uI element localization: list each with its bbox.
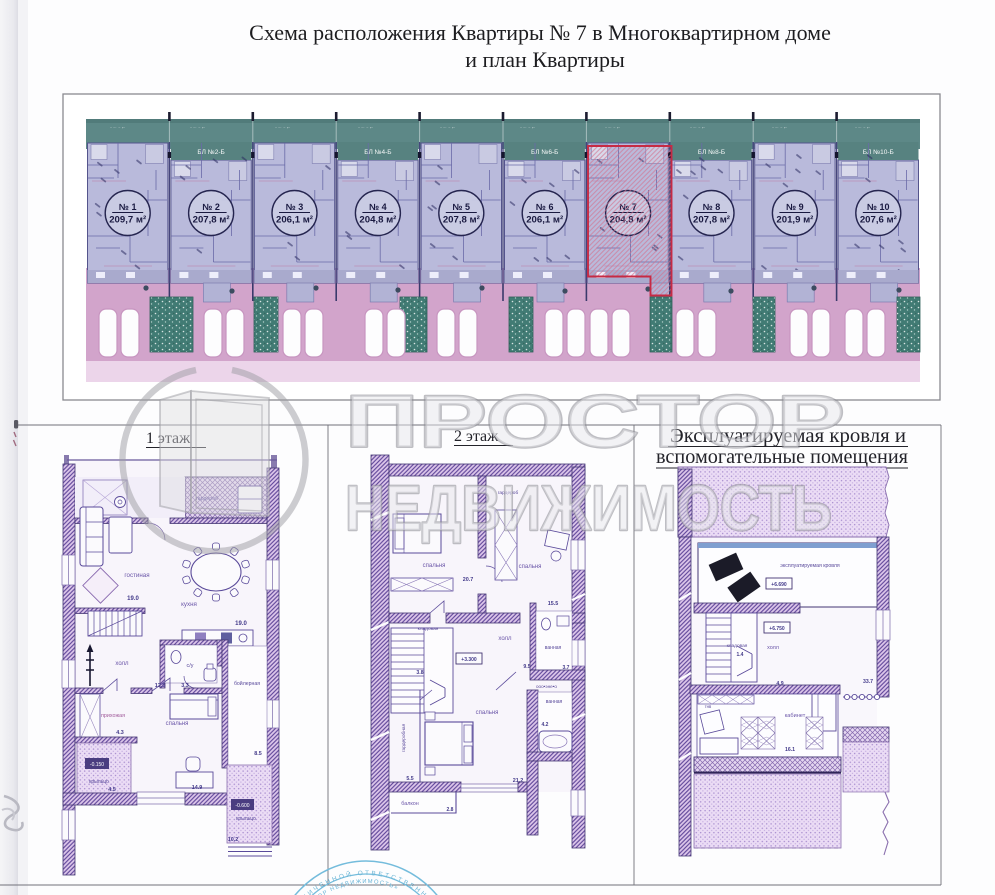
svg-text:спальня: спальня bbox=[519, 564, 542, 570]
svg-text:˝ ˝´ ˝ ʼ˝: ˝ ˝´ ˝ ʼ˝ bbox=[275, 127, 291, 133]
svg-text:5.5: 5.5 bbox=[406, 776, 413, 782]
svg-text:№ 9: № 9 bbox=[786, 202, 804, 212]
svg-text:˝ ˝´ ˝ ʼ˝: ˝ ˝´ ˝ ʼ˝ bbox=[358, 127, 374, 133]
svg-text:˝ ˝´ ˝ ʼ˝: ˝ ˝´ ˝ ʼ˝ bbox=[690, 127, 706, 133]
svg-text:204,8 м²: 204,8 м² bbox=[359, 215, 396, 226]
svg-text:кухня: кухня bbox=[181, 601, 197, 608]
svg-text:гардеробная: гардеробная bbox=[401, 723, 407, 752]
svg-text:-0.600: -0.600 bbox=[235, 803, 249, 809]
svg-text:207,8 м²: 207,8 м² bbox=[193, 215, 230, 226]
svg-text:4.3: 4.3 bbox=[116, 730, 124, 736]
svg-text:кладовая: кладовая bbox=[418, 627, 439, 632]
svg-text:НЕДВИЖИМОСТЬ: НЕДВИЖИМОСТЬ bbox=[345, 472, 832, 544]
svg-text:крыльцо: крыльцо bbox=[236, 816, 256, 822]
svg-text:4.5: 4.5 bbox=[108, 787, 116, 793]
svg-text:прихожая: прихожая bbox=[101, 713, 125, 719]
svg-text:19.0: 19.0 bbox=[235, 621, 247, 627]
svg-text:тнв: тнв bbox=[705, 704, 712, 709]
svg-text:№ 4: № 4 bbox=[369, 202, 387, 212]
svg-text:206,1 м²: 206,1 м² bbox=[526, 215, 563, 226]
svg-text:+6.690: +6.690 bbox=[771, 582, 787, 588]
svg-text:+6.750: +6.750 bbox=[769, 626, 785, 632]
svg-text:с/у: с/у bbox=[187, 663, 194, 669]
svg-text:207,8 м²: 207,8 м² bbox=[443, 215, 480, 226]
svg-text:207,6 м²: 207,6 м² bbox=[860, 215, 897, 226]
svg-text:№ 10: № 10 bbox=[867, 202, 890, 212]
svg-text:№ 8: № 8 bbox=[703, 202, 721, 212]
svg-text:10.2: 10.2 bbox=[228, 837, 239, 843]
svg-text:8.5: 8.5 bbox=[254, 751, 262, 757]
svg-text:ПРОСТОР: ПРОСТОР bbox=[345, 380, 845, 463]
svg-text:спальня: спальня bbox=[476, 710, 499, 716]
svg-text:14.9: 14.9 bbox=[192, 785, 203, 791]
svg-text:˝ ˝´ ˝ ʼ˝: ˝ ˝´ ˝ ʼ˝ bbox=[605, 127, 621, 133]
svg-text:15.5: 15.5 bbox=[548, 601, 559, 607]
svg-text:33.7: 33.7 bbox=[863, 679, 873, 685]
svg-text:балкон: балкон bbox=[401, 801, 419, 807]
svg-text:16.1: 16.1 bbox=[785, 747, 795, 753]
svg-text:холл: холл bbox=[767, 645, 779, 651]
svg-text:бойлерная: бойлерная bbox=[234, 680, 260, 687]
svg-text:˝ ˝´ ˝ ʼ˝: ˝ ˝´ ˝ ʼ˝ bbox=[440, 127, 456, 133]
svg-text:˝ ˝´ ˝ ʼ˝: ˝ ˝´ ˝ ʼ˝ bbox=[110, 127, 126, 133]
svg-text:+3.300: +3.300 bbox=[461, 657, 477, 663]
svg-text:№ 5: № 5 bbox=[453, 202, 471, 212]
svg-text:кладовая: кладовая bbox=[727, 644, 748, 649]
svg-text:19.0: 19.0 bbox=[127, 596, 139, 602]
svg-text:ванная: ванная bbox=[545, 645, 562, 651]
svg-text:ооо•эне•о: ооо•эне•о bbox=[536, 684, 557, 689]
svg-text:ванная: ванная bbox=[546, 699, 563, 705]
svg-text:209,7 м²: 209,7 м² bbox=[109, 215, 146, 226]
svg-text:˝ ˝´ ˝ ʼ˝: ˝ ˝´ ˝ ʼ˝ bbox=[520, 127, 536, 133]
svg-text:спальня: спальня bbox=[423, 563, 446, 569]
svg-text:˝ ˝´ ˝ ʼ˝: ˝ ˝´ ˝ ʼ˝ bbox=[190, 127, 206, 133]
svg-text:№ 1: № 1 bbox=[119, 202, 137, 212]
svg-text:˝ ˝´ ˝ ʼ˝: ˝ ˝´ ˝ ʼ˝ bbox=[855, 127, 871, 133]
svg-text:-0.150: -0.150 bbox=[90, 762, 104, 768]
svg-text:кабинет: кабинет bbox=[785, 713, 806, 719]
svg-text:крыльцо: крыльцо bbox=[89, 779, 109, 785]
svg-text:гостиная: гостиная bbox=[124, 572, 149, 579]
svg-text:№ 3: № 3 bbox=[286, 202, 304, 212]
svg-text:207,8 м²: 207,8 м² bbox=[693, 215, 730, 226]
svg-text:206,1 м²: 206,1 м² bbox=[276, 215, 313, 226]
svg-text:4.2: 4.2 bbox=[542, 722, 549, 728]
svg-text:и план Квартиры: и план Квартиры bbox=[465, 47, 625, 72]
svg-text:спальня: спальня bbox=[166, 721, 189, 727]
svg-text:201,9 м²: 201,9 м² bbox=[776, 215, 813, 226]
svg-text:№ 6: № 6 bbox=[536, 202, 554, 212]
svg-text:Схема расположения Квартиры №: Схема расположения Квартиры № 7 в Многок… bbox=[249, 20, 831, 45]
svg-text:˝ ˝´ ˝ ʼ˝: ˝ ˝´ ˝ ʼ˝ bbox=[772, 127, 788, 133]
svg-text:холл: холл bbox=[498, 636, 512, 642]
svg-text:3.8: 3.8 bbox=[416, 670, 423, 676]
svg-text:№ 2: № 2 bbox=[202, 202, 220, 212]
svg-text:холл: холл bbox=[115, 661, 129, 667]
svg-text:1.4: 1.4 bbox=[737, 652, 744, 658]
svg-text:2.8: 2.8 bbox=[447, 807, 454, 813]
svg-text:эксплуатируемая кровля: эксплуатируемая кровля bbox=[780, 563, 840, 569]
svg-text:20.7: 20.7 bbox=[463, 577, 474, 583]
